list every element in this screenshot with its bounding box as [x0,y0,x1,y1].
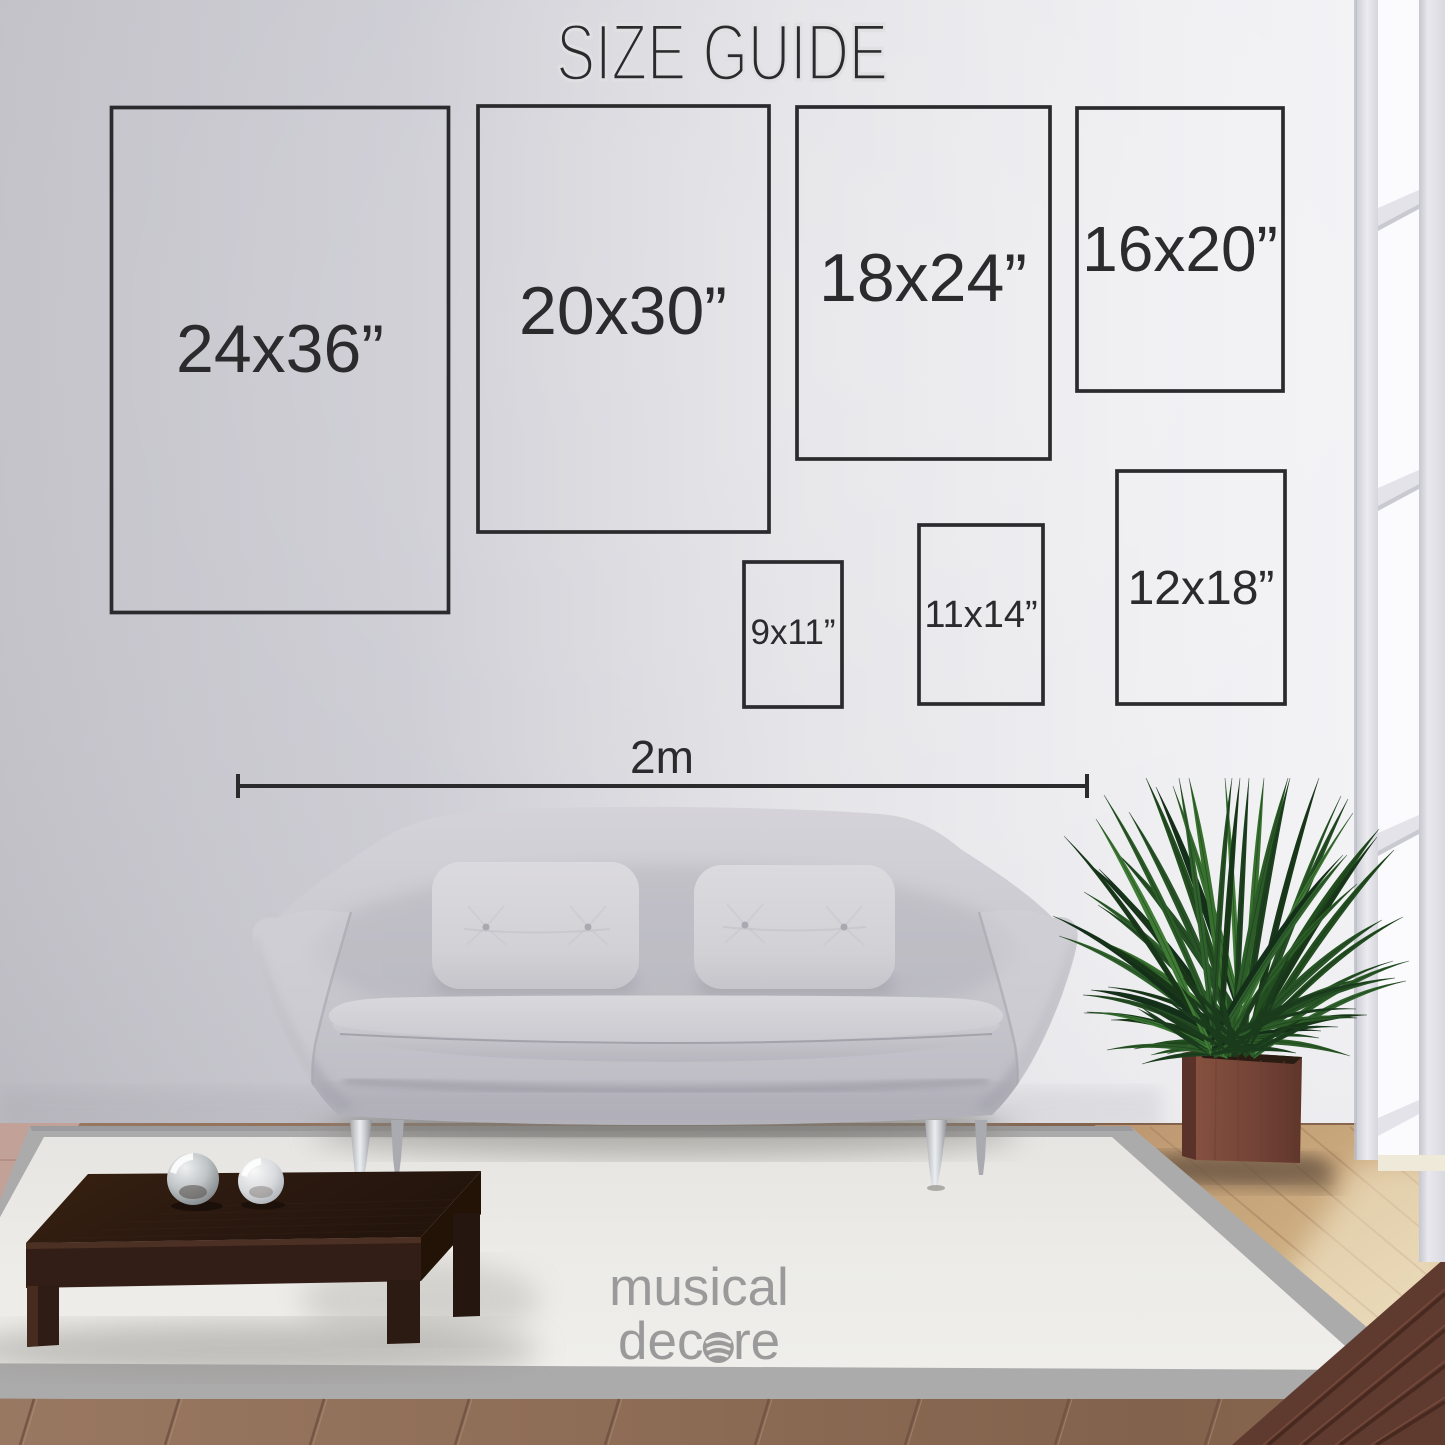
svg-text:dec: dec [618,1312,703,1371]
svg-text:24x36”: 24x36” [176,311,384,387]
svg-text:11x14”: 11x14” [924,594,1037,636]
svg-text:18x24”: 18x24” [819,240,1027,316]
svg-text:20x30”: 20x30” [519,273,727,349]
svg-text:re: re [733,1312,780,1371]
svg-text:2m: 2m [630,731,694,783]
svg-text:SIZE GUIDE: SIZE GUIDE [556,7,888,98]
svg-text:12x18”: 12x18” [1128,562,1275,615]
svg-text:16x20”: 16x20” [1082,213,1278,285]
svg-text:musical: musical [609,1258,789,1317]
svg-text:9x11”: 9x11” [751,613,836,652]
